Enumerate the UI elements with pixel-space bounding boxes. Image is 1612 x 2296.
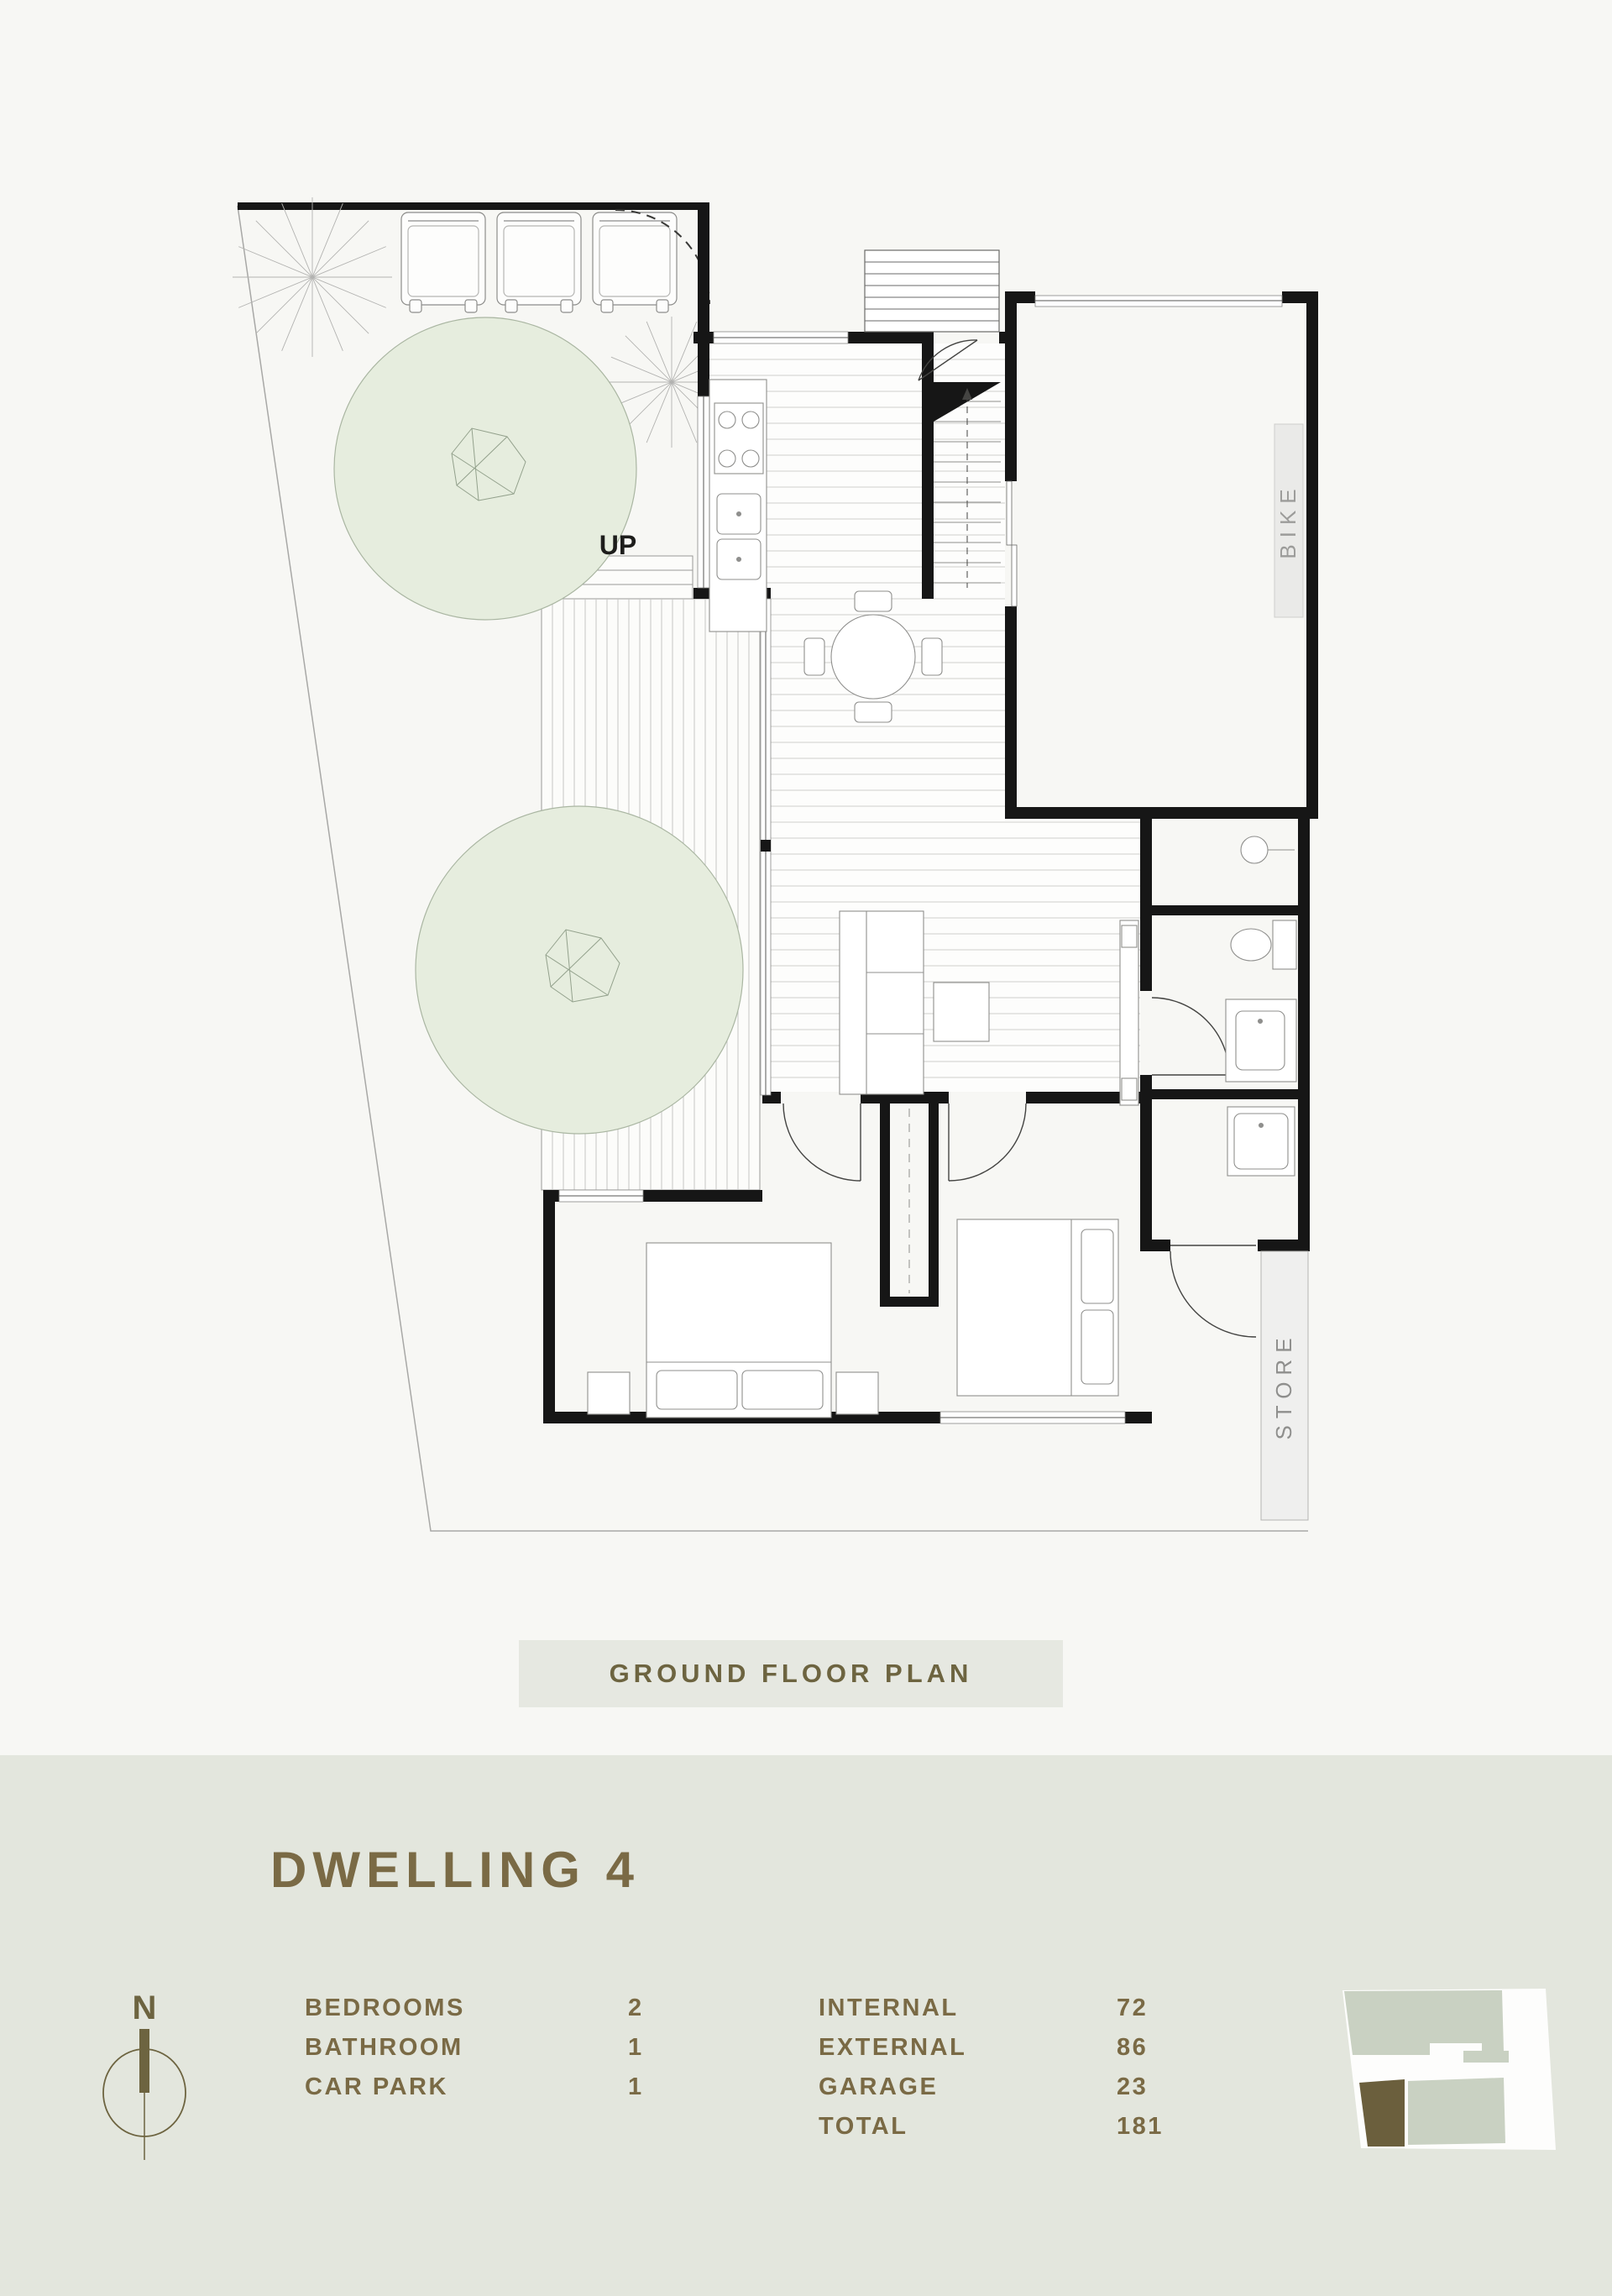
stat-row-total: TOTAL 181 <box>819 2107 1164 2147</box>
north-compass: N <box>80 1982 214 2175</box>
garden-tree-1 <box>334 317 636 620</box>
stat-label: TOTAL <box>819 2113 1117 2141</box>
laundry-sink-icon <box>1241 836 1268 863</box>
stat-value: 2 <box>628 1995 644 2022</box>
stat-label: BATHROOM <box>305 2034 628 2062</box>
stat-row-external: EXTERNAL 86 <box>819 2028 1164 2068</box>
keyplan-block-step <box>1463 2051 1509 2063</box>
garden-tree-2 <box>416 806 743 1134</box>
stat-row-internal: INTERNAL 72 <box>819 1989 1164 2028</box>
stat-label: BEDROOMS <box>305 1995 628 2022</box>
store-area: STORE <box>1261 1251 1308 1520</box>
entry-canopy <box>865 250 999 332</box>
tv-unit <box>1120 920 1138 1105</box>
stat-value: 181 <box>1117 2113 1164 2141</box>
stat-value: 1 <box>628 2034 644 2062</box>
toilet-icon <box>1273 920 1296 969</box>
bike-rack: BIKE <box>1274 424 1303 617</box>
shrub-sketch-1 <box>233 197 392 357</box>
stat-value: 86 <box>1117 2034 1148 2062</box>
stat-label: INTERNAL <box>819 1995 1117 2022</box>
stat-label: GARAGE <box>819 2073 1117 2101</box>
stats-right: INTERNAL 72 EXTERNAL 86 GARAGE 23 TOTAL … <box>819 1989 1164 2147</box>
bike-label: BIKE <box>1275 482 1301 558</box>
stat-label: CAR PARK <box>305 2073 628 2101</box>
bed-2 <box>957 1219 1118 1396</box>
stat-label: EXTERNAL <box>819 2034 1117 2062</box>
kitchen-bench <box>709 380 767 632</box>
compass-needle-icon <box>139 2029 149 2093</box>
stat-row-bedrooms: BEDROOMS 2 <box>305 1989 644 2028</box>
store-label: STORE <box>1271 1331 1296 1439</box>
wheelie-bins <box>401 212 677 312</box>
site-key-plan <box>1331 1982 1566 2158</box>
stat-row-carpark: CAR PARK 1 <box>305 2068 644 2107</box>
floor-plan-page: BIKE STORE UP GROUND FLOOR PLAN DWELLING… <box>0 0 1612 2296</box>
stat-value: 1 <box>628 2073 644 2101</box>
compass-north-label: N <box>133 1989 157 2026</box>
laundry-fixtures <box>1226 836 1296 1176</box>
dwelling-title: DWELLING 4 <box>270 1841 640 1899</box>
stat-row-garage: GARAGE 23 <box>819 2068 1164 2107</box>
stat-value: 72 <box>1117 1995 1148 2022</box>
stat-value: 23 <box>1117 2073 1148 2101</box>
stat-row-bathroom: BATHROOM 1 <box>305 2028 644 2068</box>
plan-caption: GROUND FLOOR PLAN <box>610 1659 973 1689</box>
bed-1 <box>588 1243 878 1418</box>
up-label: UP <box>599 530 636 560</box>
floor-plan-drawing: BIKE STORE UP <box>0 0 1612 1604</box>
stats-left: BEDROOMS 2 BATHROOM 1 CAR PARK 1 <box>305 1989 644 2107</box>
plan-caption-box: GROUND FLOOR PLAN <box>519 1640 1063 1707</box>
keyplan-block-south <box>1408 2078 1505 2145</box>
